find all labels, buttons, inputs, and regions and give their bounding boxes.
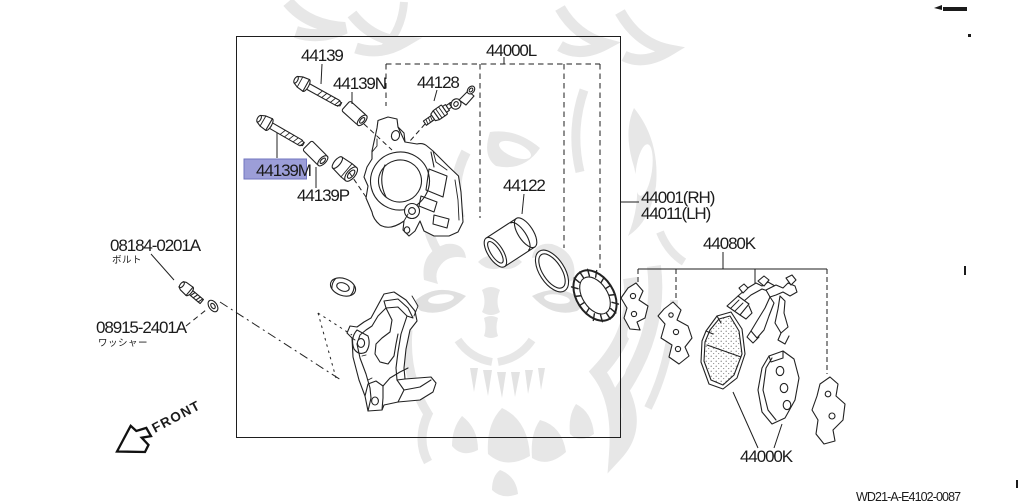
svg-text:44000K: 44000K [740, 447, 794, 466]
svg-text:08915-2401A: 08915-2401A [96, 318, 188, 337]
svg-text:44139M: 44139M [256, 161, 311, 180]
svg-text:44011(LH): 44011(LH) [641, 204, 711, 223]
svg-text:08184-0201A: 08184-0201A [110, 236, 202, 255]
svg-text:44139: 44139 [301, 46, 343, 65]
svg-text:44139N: 44139N [333, 74, 386, 93]
svg-text:ワッシャー: ワッシャー [98, 338, 148, 349]
svg-text:44000L: 44000L [486, 41, 537, 60]
svg-text:ボルト: ボルト [112, 255, 142, 266]
svg-text:44080K: 44080K [703, 234, 757, 253]
svg-text:44139P: 44139P [297, 186, 350, 205]
svg-text:44122: 44122 [503, 176, 545, 195]
svg-text:44128: 44128 [417, 73, 459, 92]
svg-text:WD21-A-E4102-0087: WD21-A-E4102-0087 [856, 490, 961, 503]
